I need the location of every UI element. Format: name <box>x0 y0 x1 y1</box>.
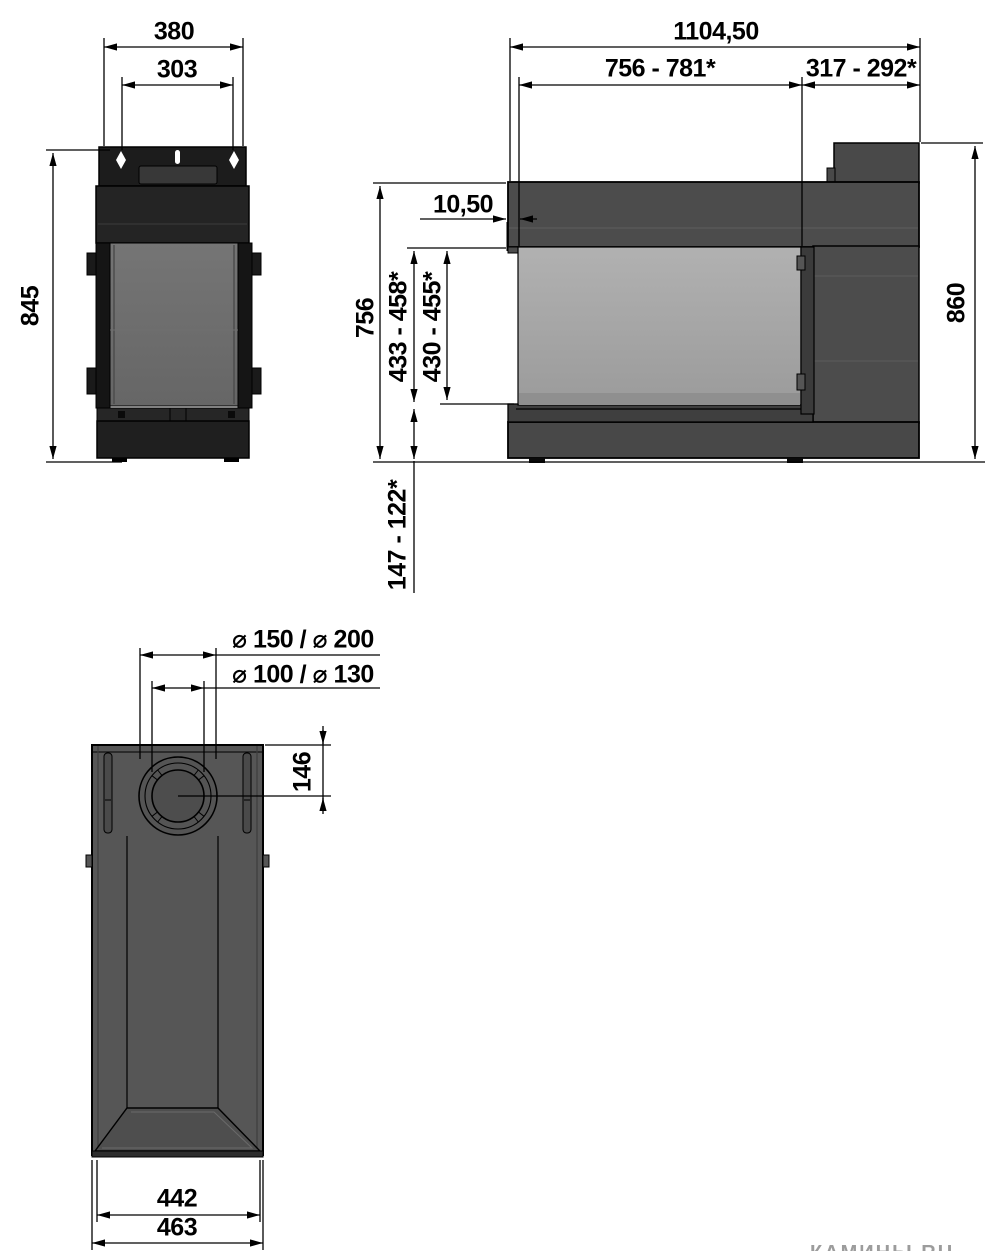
frame-lip <box>508 247 519 253</box>
flue-collar-front <box>139 166 217 184</box>
dim-front-glass-width: 756 - 781* <box>605 57 715 82</box>
dim-front-overall-height: 860 <box>945 283 970 323</box>
dim-side-outer-width: 380 <box>154 20 194 45</box>
base-block <box>97 421 249 458</box>
base-band <box>508 422 919 458</box>
raised-top-block <box>834 143 919 183</box>
bracket-slot-left <box>104 753 112 833</box>
side-tab-right <box>263 855 269 867</box>
hinge-top <box>797 256 805 270</box>
dim-front-opening-height-b: 430 - 455* <box>421 272 446 382</box>
dim-front-height: 756 <box>354 298 379 338</box>
glass-clip <box>87 368 96 394</box>
sill <box>508 404 813 422</box>
upper-body <box>96 186 249 243</box>
right-panel <box>813 246 919 423</box>
side-frame-left <box>96 243 110 408</box>
watermark-text: КАМИНЫ.RU <box>810 1243 998 1251</box>
top-band <box>508 182 919 247</box>
side-glass-panel <box>110 243 238 406</box>
front-edge-strip <box>92 1151 263 1157</box>
side-view-drawing <box>87 147 261 462</box>
glass-clip <box>87 253 96 275</box>
dim-front-side-width: 317 - 292* <box>806 57 916 82</box>
dim-top-flue-inner: ⌀ 100 / ⌀ 130 <box>232 663 374 688</box>
side-tab-left <box>86 855 92 867</box>
drawing-canvas <box>0 0 1000 1251</box>
top-view-drawing <box>86 745 269 1157</box>
dim-front-frame-offset: 10,50 <box>433 193 493 218</box>
dim-side-height: 845 <box>19 286 44 326</box>
top-block-notch <box>827 168 835 183</box>
dim-top-flue-offset: 146 <box>291 752 316 792</box>
hinge-bottom <box>797 374 805 390</box>
foot <box>224 458 239 462</box>
dim-front-overall-width: 1104,50 <box>673 20 759 45</box>
technical-drawing-page: 380 303 845 1104,50 756 - 781* 317 - 292… <box>0 0 1000 1251</box>
dim-front-plinth-height: 147 - 122* <box>386 480 411 590</box>
watermark: КАМИНЫ.RU <box>810 1243 998 1251</box>
glass-clip <box>252 368 261 394</box>
front-glass-panel <box>518 247 801 405</box>
dim-top-flue-outer: ⌀ 150 / ⌀ 200 <box>232 628 374 653</box>
front-view-drawing <box>508 143 919 463</box>
dim-top-overall-width: 463 <box>157 1216 197 1241</box>
bracket-slot-right <box>243 753 251 833</box>
dim-side-hole-spacing: 303 <box>157 58 197 83</box>
dim-front-opening-height-a: 433 - 458* <box>387 272 412 382</box>
glass-bottom-strip <box>519 393 800 405</box>
side-frame-right <box>238 243 252 408</box>
mount-slot-center <box>175 150 180 164</box>
dim-top-glass-width: 442 <box>157 1187 197 1212</box>
glass-clip <box>252 253 261 275</box>
